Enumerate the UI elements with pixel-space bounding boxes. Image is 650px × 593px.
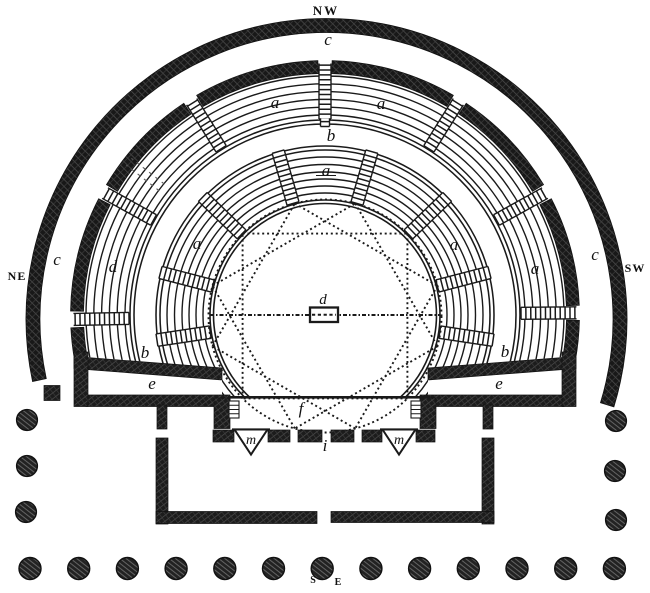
svg-text:b: b (327, 126, 336, 145)
svg-text:d: d (109, 257, 118, 276)
svg-text:S: S (310, 575, 316, 586)
svg-text:a: a (450, 235, 459, 254)
svg-text:m: m (246, 433, 256, 448)
svg-text:a: a (377, 94, 386, 113)
svg-text:c: c (53, 250, 61, 269)
svg-text:i: i (323, 436, 328, 455)
svg-text:NE: NE (8, 269, 27, 283)
svg-text:e: e (148, 374, 156, 393)
svg-text:a: a (271, 93, 280, 112)
svg-text:SW: SW (625, 261, 646, 275)
svg-text:d: d (319, 292, 327, 308)
svg-text:b: b (501, 342, 510, 361)
svg-text:NW: NW (313, 3, 339, 18)
svg-text:a: a (193, 234, 202, 253)
svg-text:c: c (324, 30, 332, 49)
svg-text:m: m (394, 433, 404, 448)
svg-text:E: E (335, 577, 342, 588)
svg-text:e: e (495, 374, 503, 393)
svg-text:c: c (591, 245, 599, 264)
svg-text:b: b (141, 343, 150, 362)
svg-text:a: a (322, 161, 331, 180)
svg-text:a: a (531, 259, 540, 278)
